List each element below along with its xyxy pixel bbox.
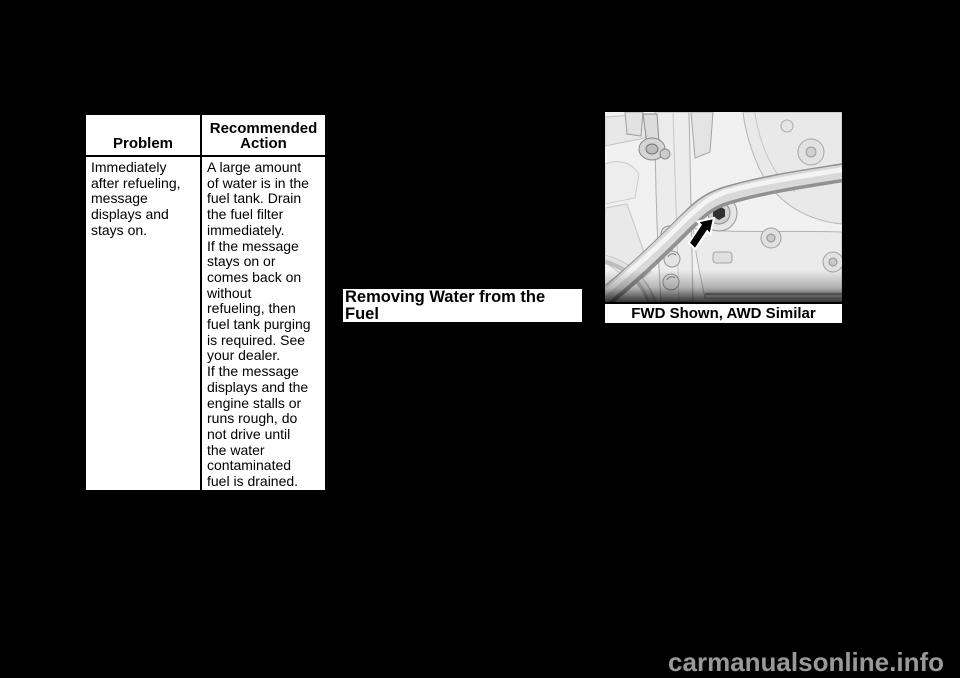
action-cell: A large amount of water is in the fuel t… <box>201 156 326 491</box>
figure-caption: FWD Shown, AWD Similar <box>605 302 842 323</box>
problem-cell: Immediately after refueling, message dis… <box>85 156 201 491</box>
table-row: Immediately after refueling, message dis… <box>85 156 326 491</box>
header-problem-cell: Problem <box>85 114 201 156</box>
watermark-text: carmanualsonline.info <box>668 649 944 675</box>
problem-table: Problem Recommended Action Immediately a… <box>84 113 327 492</box>
header-action-cell: Recommended Action <box>201 114 326 156</box>
figure-underbody: FWD Shown, AWD Similar <box>603 110 844 325</box>
manual-page: Problem Recommended Action Immediately a… <box>0 0 960 678</box>
underbody-illustration <box>605 112 842 302</box>
table-header-row: Problem Recommended Action <box>85 114 326 156</box>
section-heading: Removing Water from the Fuel Filter <box>341 287 584 324</box>
problem-table-container: Problem Recommended Action Immediately a… <box>84 113 327 492</box>
